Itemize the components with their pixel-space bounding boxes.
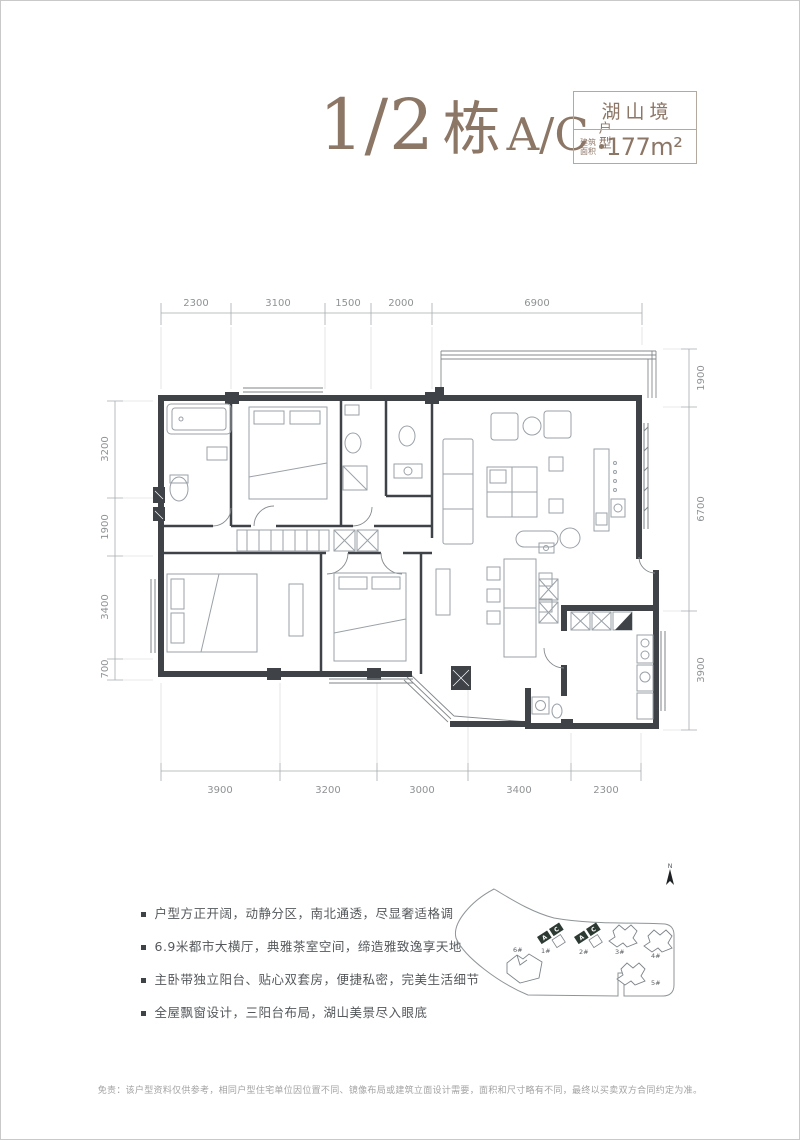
page-title: 1/2 栋 A/C 户型	[319, 89, 613, 161]
cabinet	[436, 569, 450, 615]
building-label: 3#	[615, 948, 625, 956]
building-label: 2#	[579, 948, 589, 956]
dim-label: 1900	[100, 514, 111, 539]
floor-plan-svg: 2300 3100 1500 2000 6900 3900 3200 3000 …	[91, 281, 711, 801]
interior-walls	[161, 398, 432, 674]
sofa	[443, 439, 473, 544]
dimension-left: 3200 1900 3400 700	[100, 401, 123, 680]
windows	[151, 388, 665, 711]
feature-item: 6.9米都市大横厅，典雅茶室空间，缔造雅致逸享天地	[141, 937, 480, 957]
bed	[334, 573, 406, 661]
feature-item: 全屋飘窗设计，三阳台布局，湖山美景尽入眼底	[141, 1003, 480, 1023]
dimension-right: 1900 6700 3900	[681, 349, 707, 730]
dim-label: 3900	[696, 657, 707, 682]
feature-text: 6.9米都市大横厅，典雅茶室空间，缔造雅致逸享天地	[155, 937, 462, 957]
dimension-top: 2300 3100 1500 2000 6900	[161, 298, 642, 325]
area-prefix-line1: 建筑	[580, 138, 596, 147]
dim-label: 3200	[100, 436, 111, 461]
dim-label: 700	[100, 659, 111, 678]
dim-label: 2300	[593, 785, 618, 796]
feature-item: 户型方正开阔，动静分区，南北通透，尽显奢适格调	[141, 904, 480, 924]
wall-piers	[153, 387, 573, 729]
north-arrow-icon: N	[666, 862, 674, 885]
bench	[516, 531, 558, 547]
dim-label: 1900	[696, 365, 707, 390]
building-label: 1#	[541, 947, 551, 955]
toilet	[345, 433, 361, 453]
north-label: N	[668, 862, 673, 870]
armchair	[491, 413, 518, 440]
vanity	[207, 447, 227, 460]
armchair	[544, 411, 571, 438]
dim-label: 3100	[265, 298, 290, 309]
square-bullet-icon	[141, 912, 146, 917]
building-2: A C	[574, 922, 602, 947]
dim-label: 3400	[506, 785, 531, 796]
floor-plan-area: 2300 3100 1500 2000 6900 3900 3200 3000 …	[91, 281, 711, 801]
dim-label: 2000	[388, 298, 413, 309]
washer	[532, 697, 549, 714]
bullet-dot-icon	[599, 144, 604, 149]
area-info-box: 湖山境 建筑 面积 177m²	[573, 91, 697, 164]
fridge-shadow	[615, 612, 632, 630]
building-label: 5#	[651, 979, 661, 987]
dim-label: 3000	[409, 785, 434, 796]
block-number: 1/2	[319, 89, 435, 161]
building-1: A C	[537, 922, 565, 947]
site-plan: A C A C 6# 1# 2# 3# 4# 5# N	[451, 861, 701, 1033]
toilet	[552, 704, 562, 718]
feature-list: 户型方正开阔，动静分区，南北通透，尽显奢适格调 6.9米都市大横厅，典雅茶室空间…	[141, 904, 480, 1036]
dim-label: 3400	[100, 594, 111, 619]
dimension-bottom: 3900 3200 3000 3400 2300	[161, 763, 641, 796]
dim-label: 6700	[696, 496, 707, 521]
square-bullet-icon	[141, 978, 146, 983]
dim-label: 2300	[183, 298, 208, 309]
bed	[249, 407, 327, 499]
outer-walls	[161, 398, 656, 726]
poster-page: 1/2 栋 A/C 户型 湖山境 建筑 面积 177m² 2300 3100	[0, 0, 800, 1140]
building-6-outline	[507, 954, 542, 983]
feature-text: 全屋飘窗设计，三阳台布局，湖山美景尽入眼底	[155, 1003, 428, 1023]
feature-text: 主卧带独立阳台、贴心双套房，便捷私密，完美生活细节	[155, 970, 480, 990]
sink	[637, 665, 653, 691]
project-name: 湖山境	[574, 92, 696, 130]
dim-label: 3200	[315, 785, 340, 796]
disclaimer-text: 免责：该户型资料仅供参考，相同户型住宅单位因位置不同、镜像布局或建筑立面设计需要…	[1, 1083, 799, 1096]
dresser	[289, 584, 303, 636]
toilet	[170, 477, 188, 501]
balcony-railings	[404, 351, 656, 722]
feature-text: 户型方正开阔，动静分区，南北通透，尽显奢适格调	[155, 904, 454, 924]
feature-item: 主卧带独立阳台、贴心双套房，便捷私密，完美生活细节	[141, 970, 480, 990]
dim-label: 1500	[335, 298, 360, 309]
area-prefix-label: 建筑 面积	[580, 138, 596, 156]
building-label: 4#	[651, 952, 661, 960]
square-bullet-icon	[141, 1011, 146, 1016]
square-bullet-icon	[141, 945, 146, 950]
building-label: 6#	[513, 946, 523, 954]
toilet	[399, 426, 415, 446]
dim-extension-lines	[123, 327, 681, 763]
dim-label: 6900	[524, 298, 549, 309]
dim-label: 3900	[207, 785, 232, 796]
area-value: 177m²	[606, 133, 682, 161]
area-prefix-line2: 面积	[580, 147, 596, 156]
site-plan-svg: A C A C 6# 1# 2# 3# 4# 5# N	[451, 861, 701, 1033]
block-word: 栋	[443, 97, 501, 161]
